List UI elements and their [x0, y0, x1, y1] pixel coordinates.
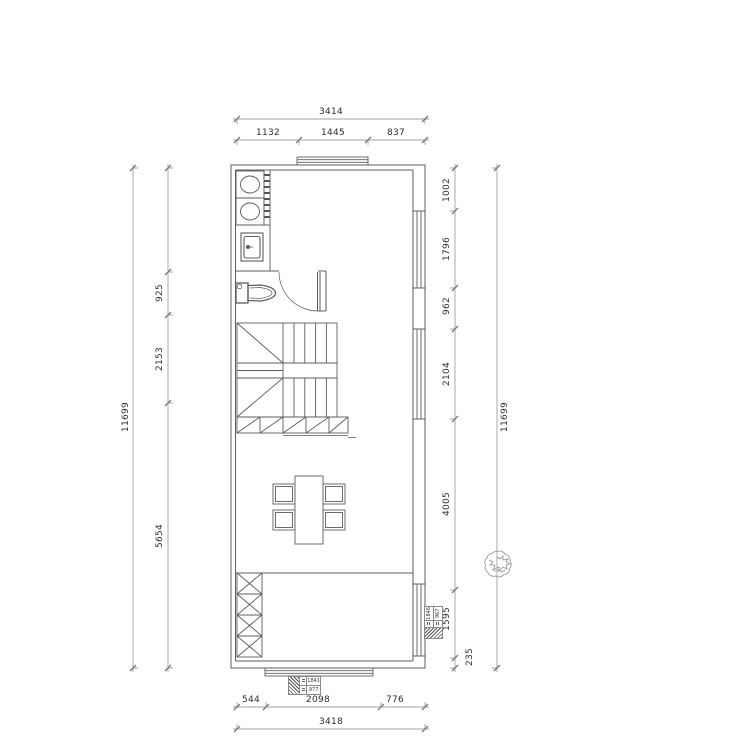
tag-symbol-cells — [300, 677, 308, 694]
dining-chair-icon — [273, 484, 295, 504]
tag-stamp-icon — [289, 677, 300, 694]
tag-symbol-icon — [427, 622, 430, 625]
window-bottom-icon — [265, 668, 373, 676]
tag-symbol-cells — [425, 620, 442, 628]
staircase-icon — [237, 323, 356, 438]
wall-hatch-marks — [265, 175, 270, 217]
stair-treads-lower — [294, 378, 326, 417]
dim-top-seg3: 837 — [387, 128, 405, 138]
tree-plant-icon — [485, 551, 511, 577]
dim-bottom-seg3: 776 — [386, 695, 404, 705]
washing-machine-1-icon — [236, 171, 264, 198]
tag-value-height: 967 — [434, 607, 442, 620]
tag-stamp-icon — [425, 627, 442, 638]
dim-right-seg4: 2104 — [442, 362, 452, 386]
sink-icon — [241, 233, 263, 261]
dim-top-seg1: 1132 — [256, 128, 280, 138]
dining-chair-icon — [323, 510, 345, 530]
tag-symbol-icon — [436, 622, 439, 625]
dim-left-seg3: 5654 — [155, 524, 165, 548]
dim-right-total: 11699 — [500, 402, 510, 432]
dim-right-seg5: 4005 — [442, 492, 452, 516]
tag-value-width: 1841 — [307, 677, 320, 686]
window-tag-right: 1846 967 — [424, 606, 443, 639]
tag-value-width: 1846 — [425, 607, 434, 620]
washing-machine-2-icon — [236, 198, 264, 225]
window-tag-bottom: 1841 977 — [288, 676, 321, 695]
dim-right-seg6: 1595 — [442, 607, 452, 631]
bathroom-area — [236, 271, 326, 311]
dim-right-seg1: 1002 — [442, 178, 452, 202]
tag-symbol-icon — [302, 688, 305, 691]
stair-treads-upper — [294, 323, 326, 363]
dining-set — [273, 476, 345, 544]
floorplan-drawing — [0, 0, 740, 740]
dim-right-seg7: 235 — [465, 648, 475, 666]
dining-chair-icon — [273, 510, 295, 530]
dim-right-seg2: 1796 — [442, 237, 452, 261]
dimension-tick-marks — [130, 116, 500, 732]
dim-top-seg2: 1445 — [321, 128, 345, 138]
door-swing-arc-icon — [279, 272, 318, 311]
dining-table-icon — [295, 476, 323, 544]
window-top-icon — [297, 157, 368, 165]
dim-left-total: 11699 — [121, 402, 131, 432]
tag-value-height: 977 — [307, 686, 320, 694]
dim-bottom-seg2: 2098 — [306, 695, 330, 705]
dim-bottom-total: 3418 — [319, 717, 343, 727]
dim-bottom-seg1: 544 — [242, 695, 260, 705]
door-leaf — [318, 272, 321, 311]
dim-left-seg2: 2153 — [155, 347, 165, 371]
toilet-icon — [236, 283, 276, 303]
windows-right-icon — [413, 211, 425, 656]
dim-top-total: 3414 — [319, 107, 343, 117]
wardrobe-icon — [236, 573, 413, 657]
tag-symbol-icon — [302, 679, 305, 682]
dining-chair-icon — [323, 484, 345, 504]
stair-direction-lines — [237, 323, 283, 417]
dim-left-seg1: 925 — [155, 284, 165, 302]
stair-bottom-flight — [237, 417, 348, 433]
utility-area — [236, 170, 270, 271]
floorplan-canvas: 3414 1132 1445 837 544 2098 776 3418 116… — [0, 0, 740, 740]
dim-right-seg3: 962 — [442, 297, 452, 315]
